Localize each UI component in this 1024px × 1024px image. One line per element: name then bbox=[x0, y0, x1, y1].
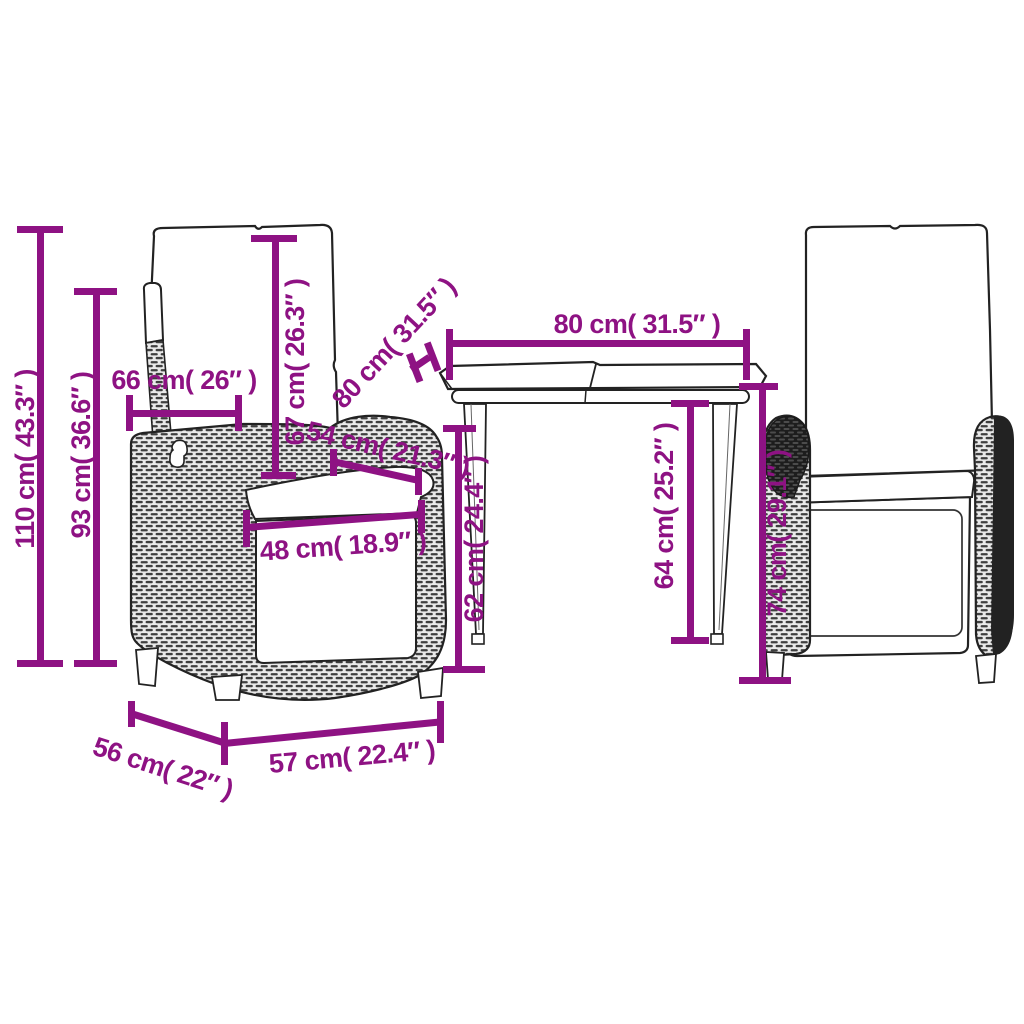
dim-base-depth-line bbox=[130, 710, 227, 746]
dim-armrest-height-tick-bottom bbox=[739, 677, 791, 684]
dim-back-width-label: 66 cm( 26″ ) bbox=[111, 366, 256, 394]
dim-backrest-height-tick-top bbox=[74, 288, 117, 295]
dim-height64-line bbox=[687, 403, 694, 644]
dim-table-depth-tick-front bbox=[406, 353, 423, 383]
dim-height62-tick-bottom bbox=[443, 666, 485, 673]
dim-back-width-tick-right bbox=[235, 395, 242, 431]
dim-seat-width-label: 48 cm( 18.9″ ) bbox=[259, 526, 427, 566]
dim-height64-tick-top bbox=[671, 400, 709, 407]
dim-cushion-height-label: 67 cm( 26.3″ ) bbox=[281, 279, 309, 446]
dimension-overlay: 110 cm( 43.3″ ) 93 cm( 36.6″ ) 66 cm( 26… bbox=[0, 0, 1024, 1024]
dim-table-depth-label: 80 cm( 31.5″ ) bbox=[327, 272, 461, 413]
dim-armrest-length-tick-left bbox=[330, 449, 337, 476]
dim-seat-width-tick-left bbox=[243, 510, 250, 547]
dim-backrest-height-tick-bottom bbox=[74, 660, 117, 667]
product-dimension-diagram: 110 cm( 43.3″ ) 93 cm( 36.6″ ) 66 cm( 26… bbox=[0, 0, 1024, 1024]
dim-base-width-tick-right bbox=[437, 701, 444, 743]
dim-height64-tick-bottom bbox=[671, 637, 709, 644]
dim-height64-label: 64 cm( 25.2″ ) bbox=[650, 423, 678, 590]
dim-armrest-height-tick-top bbox=[739, 383, 778, 390]
dim-table-width-tick-right bbox=[743, 329, 750, 380]
dim-base-width-label: 57 cm( 22.4″ ) bbox=[268, 736, 436, 779]
dim-cushion-height-line bbox=[272, 238, 279, 478]
dim-total-height-tick-bottom bbox=[17, 660, 63, 667]
dim-base-depth-tick-left bbox=[128, 701, 135, 727]
dim-height62-label: 62 cm( 24.4″ ) bbox=[460, 456, 488, 623]
dim-back-width-tick-left bbox=[126, 395, 133, 431]
dim-cushion-height-tick-bottom bbox=[261, 472, 296, 479]
dim-height62-tick-top bbox=[443, 425, 476, 432]
dim-table-width-label: 80 cm( 31.5″ ) bbox=[554, 310, 721, 338]
dim-backrest-height-label: 93 cm( 36.6″ ) bbox=[67, 372, 95, 539]
dim-table-width-line bbox=[450, 340, 749, 347]
dim-armrest-height-label: 74 cm( 29.1″ ) bbox=[763, 450, 791, 617]
dim-total-height-label: 110 cm( 43.3″ ) bbox=[11, 369, 39, 549]
dim-total-height-tick-top bbox=[17, 226, 63, 233]
dim-back-width-line bbox=[129, 410, 240, 417]
dim-table-width-tick-left bbox=[446, 329, 453, 380]
dim-cushion-height-tick-top bbox=[251, 235, 297, 242]
